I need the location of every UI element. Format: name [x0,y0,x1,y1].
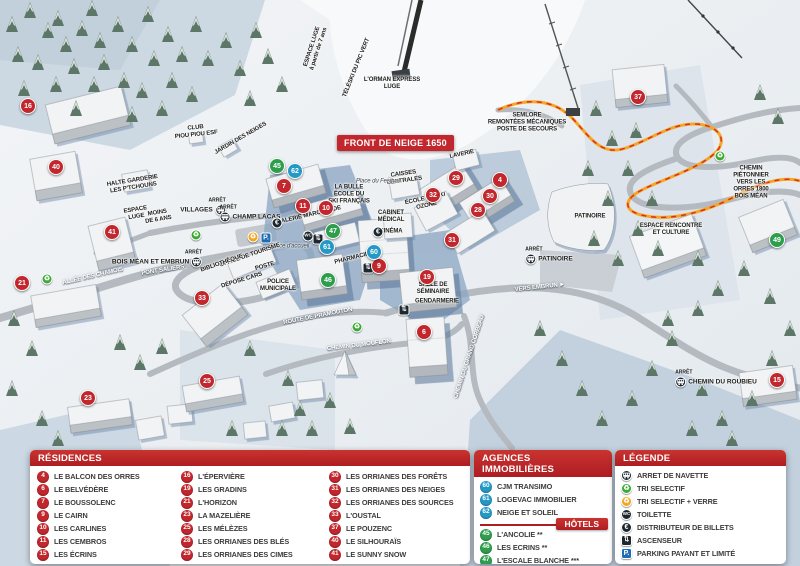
map-marker-19: 19 [419,269,435,285]
bus-stop-prefix: ARRÊT [209,199,226,204]
agences-rows: 60CJM TRANSIMO61LOGEVAC IMMOBILIER62NEIG… [474,477,612,564]
legend-item-label: TRI SELECTIF [637,484,685,493]
residence-item: 11LES CEMBROS [37,535,173,548]
atm-euro-icon: € [373,227,384,238]
residence-item-label: LES ORRIANES DES CIMES [198,550,293,559]
map-marker-45: 45 [269,158,285,174]
bus-stop-prefix: ARRÊT [525,248,542,253]
recycle-icon: ♻ [191,230,202,241]
bus-icon [191,257,202,268]
hotel-item: 46LES ECRINS ** [480,541,606,554]
residence-item-label: L'OUSTAL [346,511,381,520]
map-label: PATINOIRE [575,213,606,220]
residence-item: 6LE BELVÉDÈRE [37,483,173,496]
residences-column: 16L'ÉPERVIÈRE19LES GRADINS21L'HORIZON23L… [181,470,321,561]
residence-item-label: LE BELVÉDÈRE [54,485,108,494]
agency-item-label: LOGEVAC IMMOBILIER [497,495,577,504]
map-label: Place du Festival [356,178,400,185]
legend-item: ⇅ASCENSEUR [621,534,780,547]
bus-stop-label: PATINOIRE [538,256,572,263]
bus-stop-row: PATINOIRE [525,254,572,265]
elevator-icon: ⇅ [621,535,632,546]
residences-column: 4LE BALCON DES ORRES6LE BELVÉDÈRE7LE BOU… [37,470,173,561]
hotel-item-label: L'ANCOLIE ** [497,530,543,539]
bus-icon [621,470,632,481]
map-service-icon: € [272,218,283,229]
residence-item-label: LE SUNNY SNOW [346,550,406,559]
number-badge: 10 [37,523,49,535]
legend-item-label: ARRET DE NAVETTE [637,471,708,480]
map-marker-33: 33 [194,290,210,306]
residence-item: 31LES ORRIANES DES NEIGES [329,483,453,496]
residence-item: 16L'ÉPERVIÈRE [181,470,321,483]
number-badge: 37 [329,523,341,535]
residence-item: 23LA MAZELIÈRE [181,509,321,522]
hotel-item-label: LES ECRINS ** [497,543,547,552]
residence-item-label: LES ORRIANES DES SOURCES [346,498,453,507]
residence-item-label: LE POUZENC [346,524,392,533]
residence-item: 30LES ORRIANES DES FORÊTS [329,470,453,483]
recycle-icon: ♻ [352,322,363,333]
number-badge: 29 [181,549,193,561]
legend-item: WCTOILETTE [621,508,780,521]
agences-hotels-panel: AGENCES IMMOBILIÈRES 60CJM TRANSIMO61LOG… [474,450,612,564]
hotels-title: HÔTELS [556,518,608,530]
map-marker-37: 37 [630,89,646,105]
number-badge: 32 [329,497,341,509]
map-label: ESPACE RENCONTRE ET CULTURE [640,223,702,237]
residence-item-label: LES CEMBROS [54,537,106,546]
map-service-icon: ⇅ [399,305,410,316]
residence-item: 40LE SILHOURAÏS [329,535,453,548]
agency-item: 61LOGEVAC IMMOBILIER [480,493,606,506]
recycle-icon: ♻ [621,483,632,494]
map-marker-30: 30 [482,188,498,204]
residence-item-label: LE BALCON DES ORRES [54,472,140,481]
bus-stop-row: CHEMIN DU ROUBIEU [675,377,757,388]
hotel-item-label: L'ESCALE BLANCHE *** [497,556,579,564]
legende-title: LÉGENDE [615,450,786,466]
map-marker-46: 46 [320,272,336,288]
residences-columns: 4LE BALCON DES ORRES6LE BELVÉDÈRE7LE BOU… [30,466,470,564]
map-marker-47: 47 [325,223,341,239]
number-badge: 19 [181,484,193,496]
number-badge: 41 [329,549,341,561]
agency-item-label: NEIGE ET SOLEIL [497,508,558,517]
map-label: L'ORMAN EXPRESS LUGE [364,77,420,91]
residence-item-label: LA MAZELIÈRE [198,511,250,520]
residence-item-label: LE SILHOURAÏS [346,537,401,546]
residences-panel: RÉSIDENCES 4LE BALCON DES ORRES6LE BELVÉ… [30,450,470,564]
bus-icon [675,377,686,388]
number-badge: 16 [181,471,193,483]
map-marker-61: 61 [319,239,335,255]
number-badge: 47 [480,555,492,565]
map-label: POLICE MUNICIPALE [260,279,296,293]
recycle-icon: ♻ [42,274,53,285]
number-badge: 33 [329,510,341,522]
residence-item-label: LES MÉLÈZES [198,524,248,533]
map-service-icon: ♻ [248,232,259,243]
legend-item-label: TOILETTE [637,510,671,519]
legende-panel: LÉGENDE ARRET DE NAVETTE♻TRI SELECTIF♻TR… [615,450,786,564]
map-label: LA BULLE ÉCOLE DU SKI FRANÇAIS [328,184,369,205]
number-badge: 23 [181,510,193,522]
bus-stop: ARRÊTCHEMIN DU ROUBIEU [675,371,757,388]
bus-stop: ARRÊTPATINOIRE [525,248,572,265]
map-marker-49: 49 [769,232,785,248]
residence-item: 21L'HORIZON [181,496,321,509]
residence-item: 29LES ORRIANES DES CIMES [181,548,321,561]
number-badge: 15 [37,549,49,561]
map-marker-29: 29 [448,170,464,186]
map-label: SALLE DE SÉMINAIRE [417,282,449,296]
residence-item-label: LES ÉCRINS [54,550,97,559]
legend-item-label: TRI SELECTIF + VERRE [637,497,718,506]
map-service-icon: ♻ [352,322,363,333]
bus-stop-prefix: ARRÊT [675,371,692,376]
residence-item: 9LE CAIRN [37,509,173,522]
legend-item: ♻TRI SELECTIF + VERRE [621,495,780,508]
legend-item: P.PARKING PAYANT ET LIMITÉ [621,547,780,560]
map-marker-23: 23 [80,390,96,406]
number-badge: 25 [181,523,193,535]
toilet-icon: WC [621,509,632,520]
map-label: SEMLORE REMONTÉES MÉCANIQUES POSTE DE SE… [488,112,566,133]
residence-item-label: L'HORIZON [198,498,237,507]
map-label: GENDARMERIE [415,298,459,305]
map-label: CABINET MÉDICAL [378,210,405,224]
number-badge: 6 [37,484,49,496]
map-marker-40: 40 [48,159,64,175]
elevator-icon: ⇅ [399,305,410,316]
map-marker-62: 62 [287,163,303,179]
bus-stop-prefix: ARRÊT [185,251,202,256]
residence-item-label: L'ÉPERVIÈRE [198,472,245,481]
atm-euro-icon: € [272,218,283,229]
map-marker-9: 9 [371,258,387,274]
map-marker-28: 28 [470,202,486,218]
map-label: CHEMIN PIÉTONNIER VERS LES ORRES 1800 BO… [727,165,776,200]
legend-item: ♻TRI SELECTIF [621,482,780,495]
number-badge: 31 [329,484,341,496]
parking-icon: P. [621,548,632,559]
map-marker-4: 4 [492,172,508,188]
residence-item: 41LE SUNNY SNOW [329,548,453,561]
bus-stop-prefix: ARRÊT [220,206,237,211]
residence-item: 4LE BALCON DES ORRES [37,470,173,483]
bus-icon [220,212,231,223]
atm-euro-icon: € [621,522,632,533]
map-marker-60: 60 [366,244,382,260]
residence-item: 19LES GRADINS [181,483,321,496]
residence-item-label: LES ORRIANES DES NEIGES [346,485,445,494]
parking-icon: P. [261,233,272,244]
number-badge: 21 [181,497,193,509]
front-de-neige-banner: FRONT DE NEIGE 1650 [337,135,454,151]
recycle-glass-icon: ♻ [248,232,259,243]
number-badge: 46 [480,542,492,554]
residence-item: 33L'OUSTAL [329,509,453,522]
residence-item: 32LES ORRIANES DES SOURCES [329,496,453,509]
number-badge: 28 [181,536,193,548]
number-badge: 7 [37,497,49,509]
legend-item-label: DISTRIBUTEUR DE BILLETS [637,523,734,532]
residence-item-label: LE CAIRN [54,511,88,520]
legend-item-label: PARKING PAYANT ET LIMITÉ [637,549,735,558]
residence-item: 37LE POUZENC [329,522,453,535]
number-badge: 9 [37,510,49,522]
bus-stop-row: BOIS MÉAN ET EMBRUN [112,257,202,268]
legende-rows: ARRET DE NAVETTE♻TRI SELECTIF♻TRI SELECT… [615,466,786,563]
legend-item: ARRET DE NAVETTE [621,469,780,482]
map-service-icon: P. [261,233,272,244]
number-badge: 40 [329,536,341,548]
number-badge: 62 [480,507,492,519]
residence-item: 7LE BOUSSOLENC [37,496,173,509]
residence-item-label: LES ORRIANES DES BLÉS [198,537,289,546]
map-marker-6: 6 [416,324,432,340]
map-marker-25: 25 [199,373,215,389]
map-marker-16: 16 [20,98,36,114]
residence-item-label: LES GRADINS [198,485,247,494]
map-marker-7: 7 [276,178,292,194]
residence-item-label: LE BOUSSOLENC [54,498,116,507]
number-badge: 61 [480,494,492,506]
hotel-item: 47L'ESCALE BLANCHE *** [480,554,606,564]
map-marker-10: 10 [318,200,334,216]
residences-column: 30LES ORRIANES DES FORÊTS31LES ORRIANES … [329,470,453,561]
legend-item-label: ASCENSEUR [637,536,682,545]
residence-item: 25LES MÉLÈZES [181,522,321,535]
residence-item: 15LES ÉCRINS [37,548,173,561]
bus-stop: ARRÊTBOIS MÉAN ET EMBRUN [112,251,202,268]
hotels-divider: HÔTELS [480,524,606,526]
number-badge: 30 [329,471,341,483]
bus-stop-label: BOIS MÉAN ET EMBRUN [112,259,189,266]
map-marker-21: 21 [14,275,30,291]
number-badge: 4 [37,471,49,483]
agences-title: AGENCES IMMOBILIÈRES [474,450,612,477]
residence-item: 28LES ORRIANES DES BLÉS [181,535,321,548]
map-service-icon: ♻ [42,274,53,285]
map-marker-31: 31 [444,232,460,248]
map-marker-41: 41 [104,224,120,240]
map-service-icon: € [373,227,384,238]
residences-title: RÉSIDENCES [30,450,470,466]
agency-item: 60CJM TRANSIMO [480,480,606,493]
map-service-icon: ♻ [191,230,202,241]
residence-item-label: LES ORRIANES DES FORÊTS [346,472,447,481]
number-badge: 45 [480,529,492,541]
residence-item: 10LES CARLINES [37,522,173,535]
recycle-icon: ♻ [715,151,726,162]
number-badge: 60 [480,481,492,493]
number-badge: 11 [37,536,49,548]
bus-icon [525,254,536,265]
bus-stop-label: CHEMIN DU ROUBIEU [688,379,757,386]
map-marker-32: 32 [425,187,441,203]
map-marker-15: 15 [769,372,785,388]
recycle-glass-icon: ♻ [621,496,632,507]
agency-item-label: CJM TRANSIMO [497,482,552,491]
map-marker-11: 11 [295,198,311,214]
legend-item: €DISTRIBUTEUR DE BILLETS [621,521,780,534]
map-service-icon: ♻ [715,151,726,162]
bus-stop-label: VILLAGES [180,207,213,214]
residence-item-label: LES CARLINES [54,524,106,533]
